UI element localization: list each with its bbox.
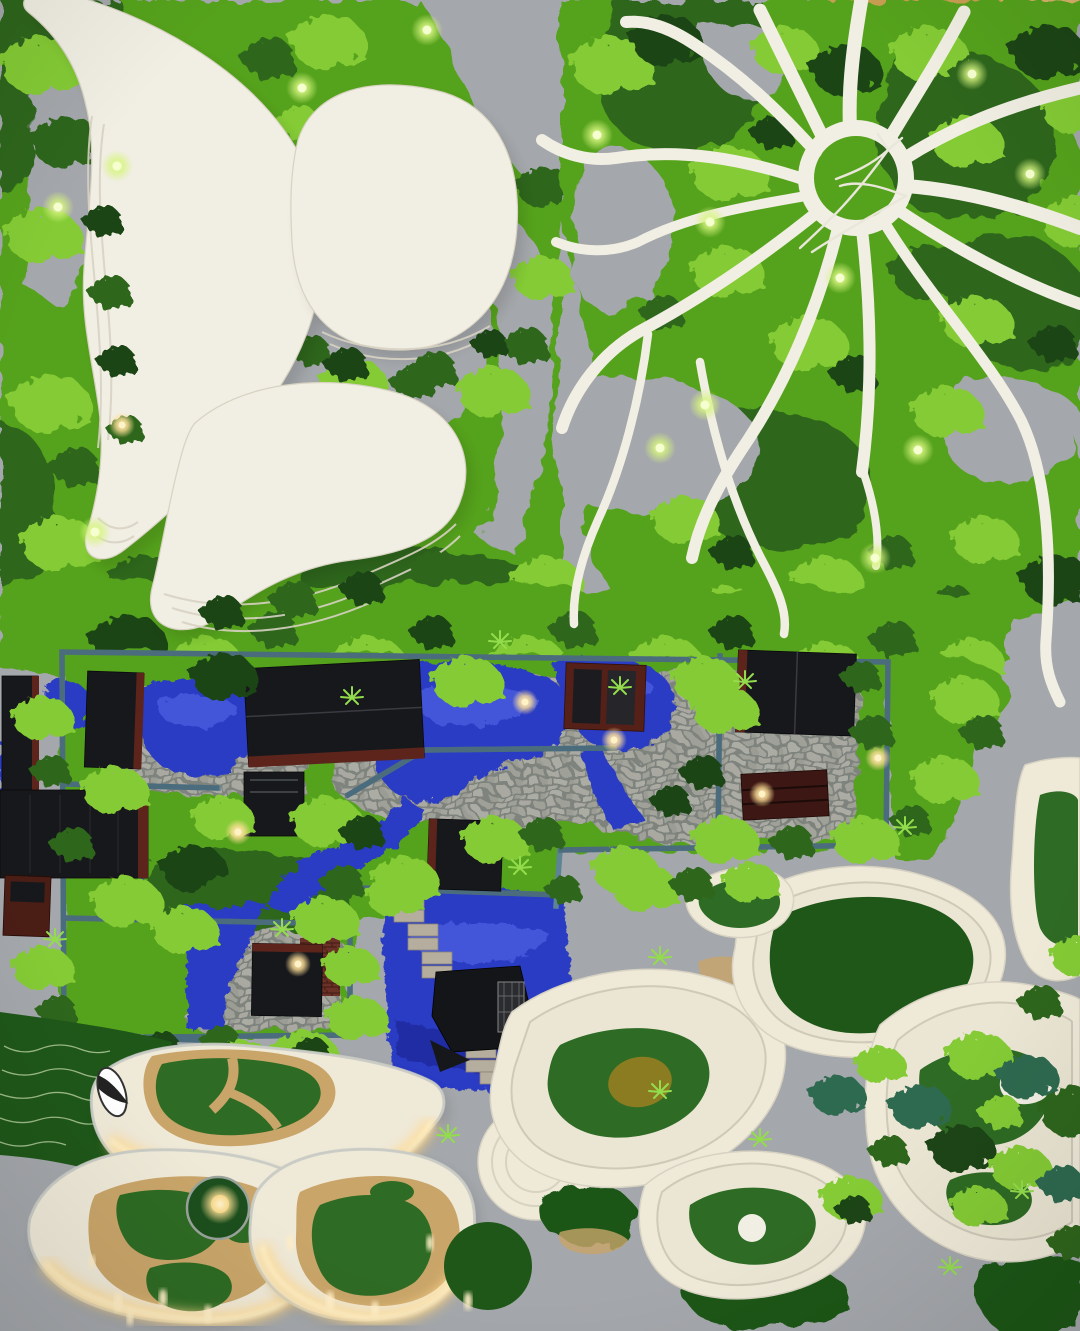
model-photo-canvas	[0, 0, 1080, 1331]
photo-vignette	[0, 0, 1080, 1331]
model-photo	[0, 0, 1080, 1331]
